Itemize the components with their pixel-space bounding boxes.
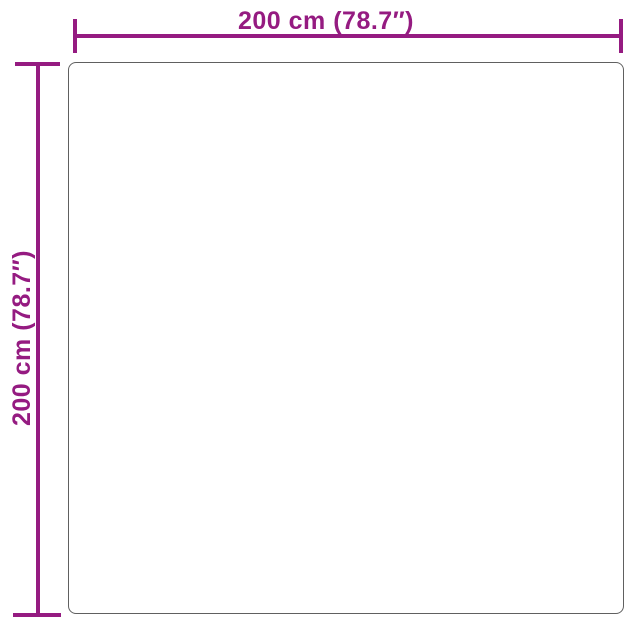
width-dimension-label: 200 cm (78.7″) — [6, 8, 640, 34]
height-dimension-label: 200 cm (78.7″) — [9, 250, 35, 426]
diagram-canvas: 200 cm (78.7″) 200 cm (78.7″) — [0, 0, 640, 640]
height-dimension-line — [36, 64, 40, 616]
product-outline-square — [68, 62, 624, 614]
height-dimension-end-cap-top — [15, 62, 60, 66]
height-dimension-end-cap-bottom — [13, 613, 61, 617]
